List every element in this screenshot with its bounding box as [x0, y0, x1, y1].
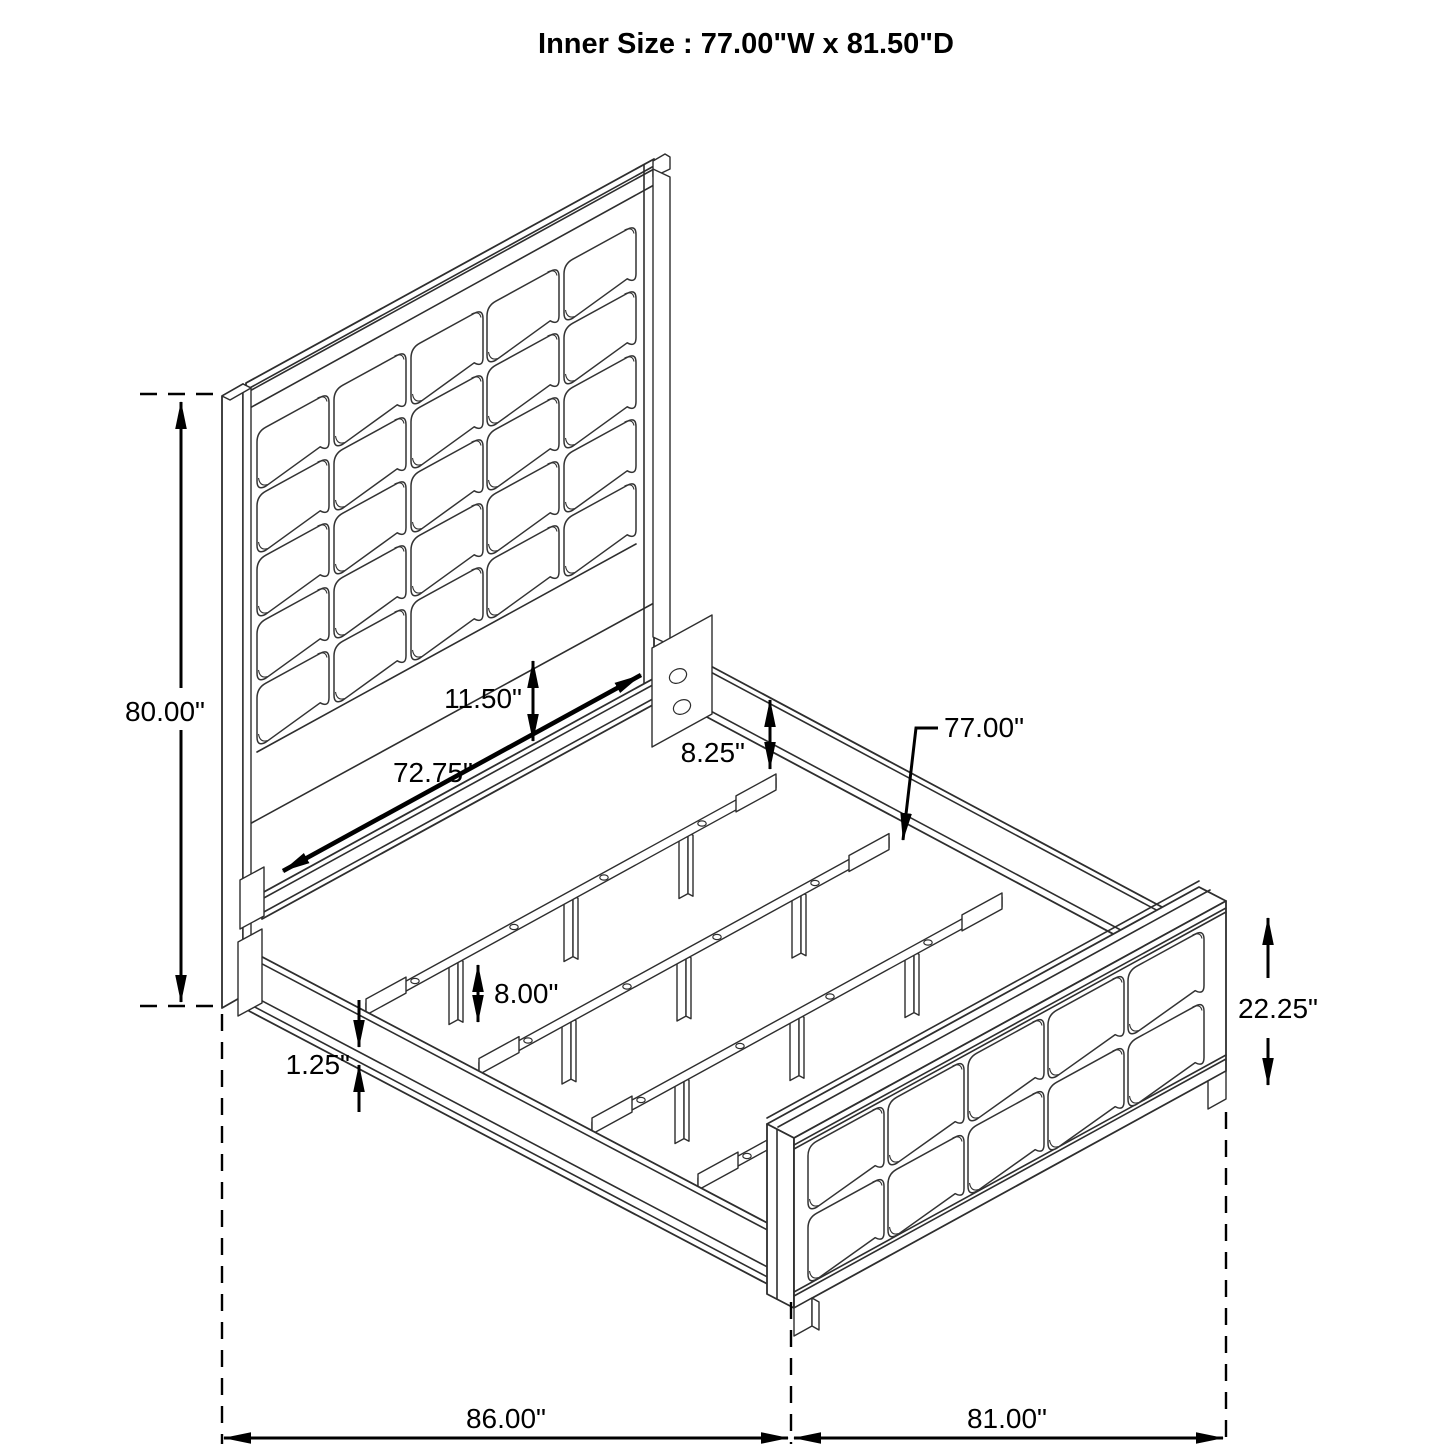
dimension-label-head-rail: 72.75" [393, 757, 473, 788]
dimension-label-rail-lip: 1.25" [286, 1049, 350, 1080]
dimension-label-leg-height: 8.00" [494, 978, 558, 1009]
dim-footboard-height: 22.25" [1238, 918, 1318, 1085]
dimension-label-rail-to-slat: 8.25" [681, 737, 745, 768]
dim-leg-height: 8.00" [478, 965, 558, 1022]
dimension-label-overall-length: 86.00" [466, 1403, 546, 1434]
footboard-group [767, 881, 1226, 1336]
bed-dimension-diagram: 80.00" 11.50" 72.75" 8.25" 77.00" 8.00" [0, 0, 1445, 1445]
left-rail-end-plate [238, 929, 262, 1016]
page-title: Inner Size : 77.00"W x 81.50"D [538, 28, 954, 60]
dimension-label-slat-length: 77.00" [944, 712, 1024, 743]
dimension-label-overall-width: 81.00" [967, 1403, 1047, 1434]
dimension-label-lower-panel: 11.50" [444, 683, 522, 714]
dimension-label-footboard-height: 22.25" [1238, 993, 1318, 1024]
page-root: 80.00" 11.50" 72.75" 8.25" 77.00" 8.00" [0, 0, 1445, 1445]
dimension-label-headboard-height: 80.00" [125, 696, 205, 727]
dim-headboard-height: 80.00" [125, 394, 222, 1006]
